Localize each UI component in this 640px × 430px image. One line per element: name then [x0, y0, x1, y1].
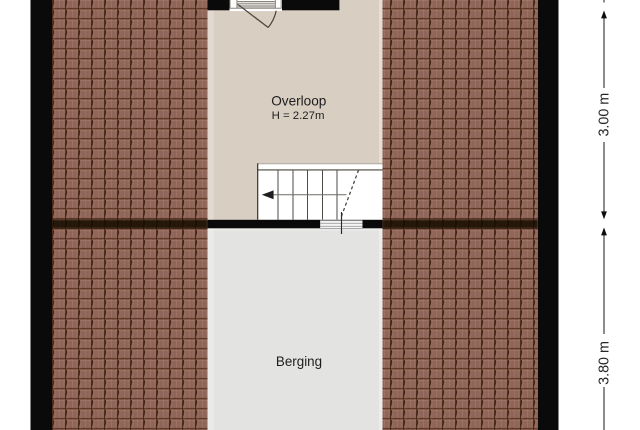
svg-text:3.80 m: 3.80 m [596, 341, 612, 385]
svg-text:3.00 m: 3.00 m [596, 93, 612, 137]
svg-text:Berging: Berging [276, 354, 322, 369]
svg-text:H = 2.27m: H = 2.27m [272, 110, 325, 122]
svg-text:Overloop: Overloop [271, 94, 326, 109]
